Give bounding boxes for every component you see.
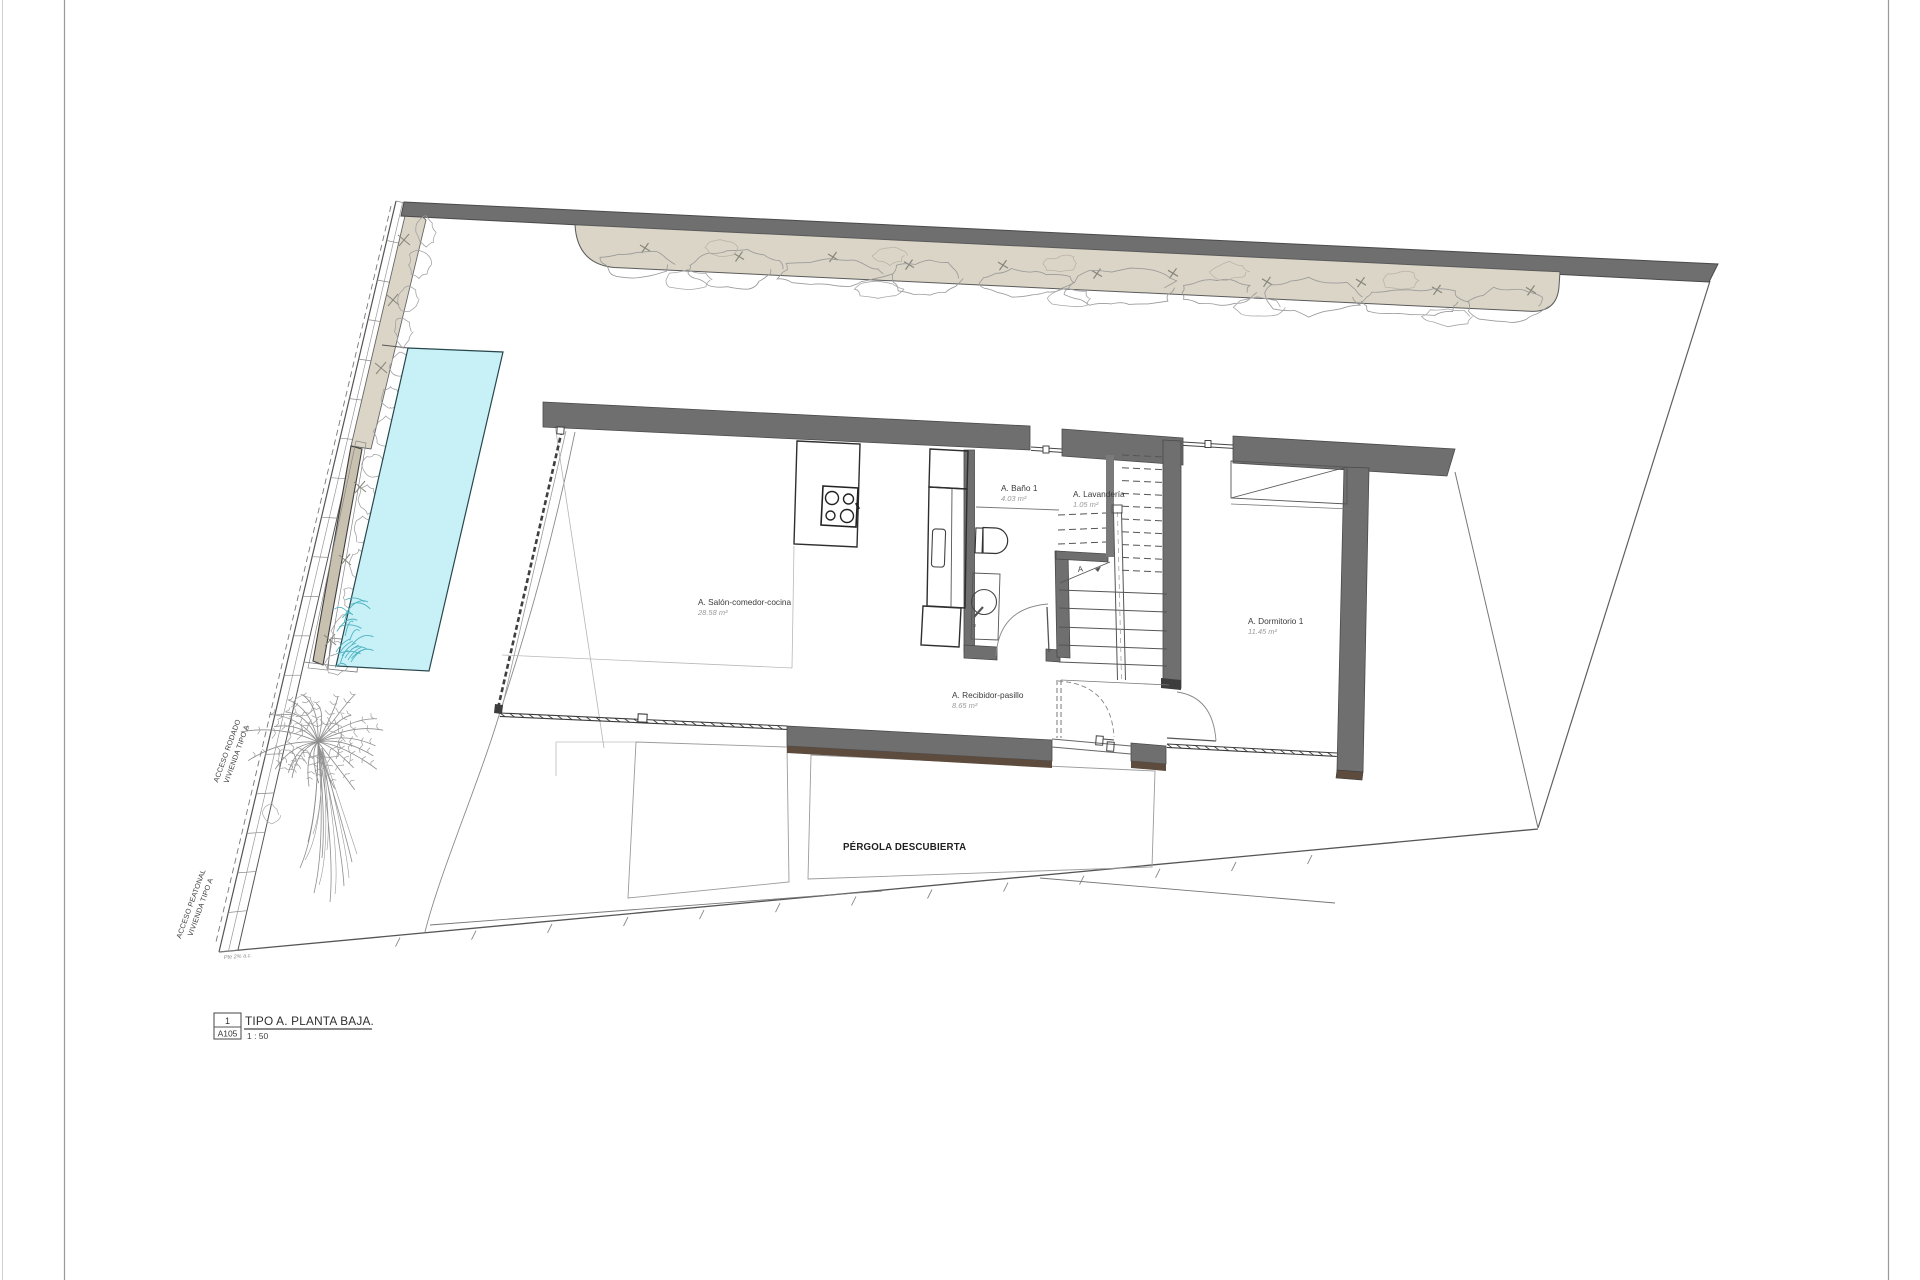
svg-text:1: 1: [225, 1016, 230, 1026]
svg-text:A105: A105: [218, 1029, 238, 1039]
svg-text:4.03 m²: 4.03 m²: [1001, 494, 1027, 503]
svg-text:A. Salón-comedor-cocina: A. Salón-comedor-cocina: [698, 597, 792, 607]
svg-text:1.05 m²: 1.05 m²: [1073, 500, 1099, 509]
svg-text:8.65 m²: 8.65 m²: [952, 701, 978, 710]
svg-text:A. Dormitorio 1: A. Dormitorio 1: [1248, 616, 1304, 626]
svg-text:11.45 m²: 11.45 m²: [1248, 627, 1278, 636]
svg-text:Pte 2% a.c.: Pte 2% a.c.: [224, 953, 252, 961]
svg-text:D: D: [973, 623, 977, 628]
svg-text:A. Recibidor-pasillo: A. Recibidor-pasillo: [952, 690, 1024, 700]
svg-text:A. Baño 1: A. Baño 1: [1001, 483, 1038, 493]
svg-text:A. Lavandería: A. Lavandería: [1073, 489, 1125, 499]
svg-text:PÉRGOLA DESCUBIERTA: PÉRGOLA DESCUBIERTA: [843, 842, 966, 853]
svg-text:TIPO A. PLANTA BAJA.: TIPO A. PLANTA BAJA.: [245, 1014, 374, 1028]
svg-text:1 : 50: 1 : 50: [247, 1031, 269, 1041]
svg-text:28.58 m²: 28.58 m²: [697, 608, 728, 617]
svg-text:A: A: [1077, 564, 1084, 574]
